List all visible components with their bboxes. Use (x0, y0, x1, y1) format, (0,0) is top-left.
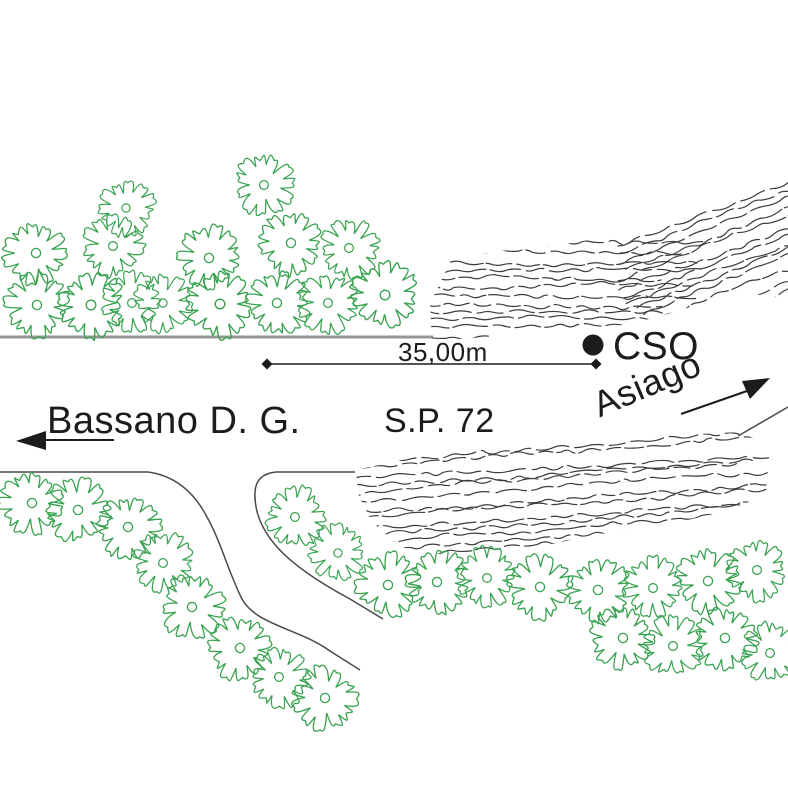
bush-symbol (94, 495, 165, 562)
bush-symbol (730, 611, 788, 691)
rock-hatch-stroke (426, 275, 661, 282)
bush-symbol (310, 207, 392, 290)
rock-hatch-stroke (618, 179, 788, 295)
asiago-road-edge (738, 407, 788, 436)
bush-symbol (186, 271, 251, 340)
cso-marker-dot (583, 335, 604, 356)
rock-hatch-stroke (414, 310, 672, 314)
bush-symbol (249, 202, 329, 285)
dimension-label: 35,00m (398, 339, 488, 365)
rock-hatch-stroke (339, 461, 737, 496)
rock-hatch-stroke (615, 167, 788, 266)
rock-hatch-stroke (428, 315, 682, 322)
rock-hatch-stroke (417, 303, 662, 309)
side-road-edge-right (255, 472, 383, 619)
rock-hatch-stroke (421, 294, 696, 299)
rock-hatch-stroke (415, 261, 697, 267)
rock-hatch-stroke (418, 268, 702, 274)
bush-symbol (96, 266, 165, 338)
bush-symbol (227, 144, 305, 222)
bush-symbol (256, 475, 338, 559)
rock-hatch-stroke (625, 194, 788, 308)
rock-hatch-stroke (347, 447, 788, 488)
bush-symbol (165, 212, 251, 300)
bush-symbol (724, 538, 788, 606)
bush-symbol (347, 542, 430, 624)
bush-symbol (194, 604, 282, 693)
sp72-road-label: S.P. 72 (384, 404, 495, 438)
dimension-tick-right (591, 359, 602, 370)
rock-hatch-stroke (617, 182, 788, 285)
bassano-direction-label: Bassano D. G. (47, 402, 301, 440)
bush-symbol (0, 263, 75, 346)
bush-symbol (68, 202, 154, 288)
bush-symbol (634, 607, 709, 681)
dimension-tick-left (262, 359, 273, 370)
bush-symbol (244, 640, 317, 715)
rock-hatch-stroke (357, 496, 788, 533)
site-plan: 35,00m CSO Bassano D. G. S.P. 72 Asiago (0, 0, 788, 788)
bush-symbol (31, 464, 120, 553)
bush-symbol (456, 545, 515, 607)
bush-symbol (120, 518, 206, 604)
rock-hatch-stroke (356, 499, 777, 538)
bush-symbol (300, 515, 373, 590)
rock-hatch-stroke (421, 250, 682, 256)
bush-symbol (160, 571, 229, 641)
bush-symbol (2, 224, 68, 286)
bush-symbol (338, 247, 430, 338)
bush-symbol (0, 466, 70, 543)
